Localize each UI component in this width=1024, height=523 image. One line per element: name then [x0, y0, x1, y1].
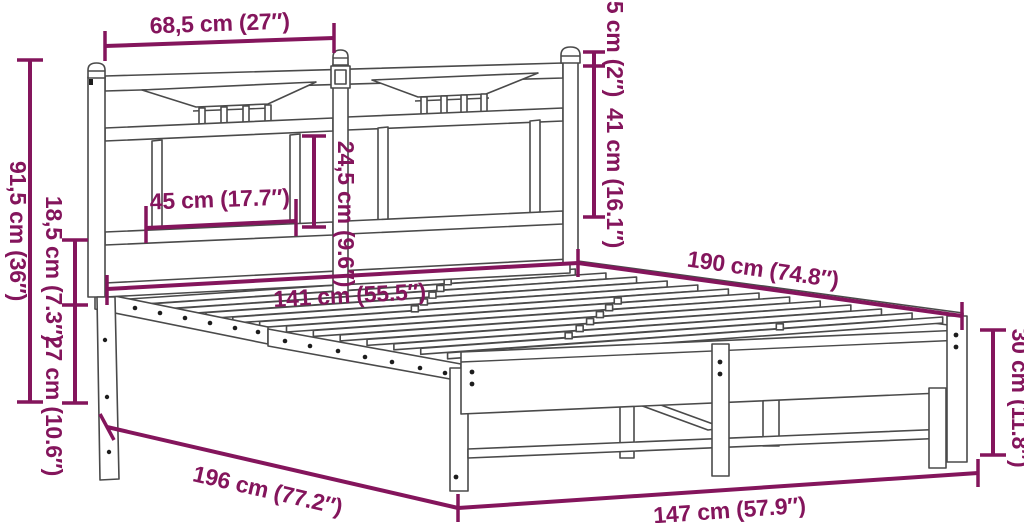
slat-clip	[429, 292, 436, 298]
screw-dot	[390, 360, 395, 365]
foot-corner-post	[947, 316, 967, 462]
panel-bar	[530, 120, 540, 213]
slat-clip	[587, 319, 594, 325]
dimension-bed-length-outer: 196 cm (77.2″)	[100, 414, 458, 522]
dimension-headboard-mid-and-frame-height: 18,5 cm (7.3″) 27 cm (10.6″)	[41, 196, 88, 476]
slat-clip	[596, 312, 603, 318]
front-right-leg	[929, 388, 946, 468]
slat-clip	[614, 298, 621, 304]
slat-clip	[606, 305, 613, 311]
screw-dot	[308, 344, 313, 349]
dimension-label-bed-length-outer: 196 cm (77.2″)	[190, 460, 345, 520]
dimension-label-headboard-upper-height: 41 cm (16.1″)	[602, 108, 628, 248]
post-cap	[561, 47, 580, 63]
screw-dot	[158, 311, 163, 316]
dimension-label-post-cap-height: 5 cm (2″)	[602, 1, 628, 97]
screw-dot	[233, 326, 238, 331]
slat-clip	[437, 285, 444, 291]
screw-dot	[133, 306, 138, 311]
slat-clip	[411, 306, 418, 312]
slat-clip	[776, 324, 783, 330]
bed-frame-diagram: 68,5 cm (27″) 5 cm (2″) 41 cm (16.1″) 91…	[0, 0, 1024, 523]
panel-bar	[378, 127, 388, 221]
dimension-label-headboard-total-height: 91,5 cm (36″)	[5, 161, 31, 301]
diagram-canvas: 68,5 cm (27″) 5 cm (2″) 41 cm (16.1″) 91…	[0, 0, 1024, 523]
screw-dot	[208, 321, 213, 326]
headboard-left-post	[88, 77, 105, 297]
dimension-headboard-total-height: 91,5 cm (36″)	[5, 60, 43, 402]
screw-dot	[256, 330, 261, 335]
screw-dot	[183, 316, 188, 321]
bottom-stretcher	[468, 429, 948, 458]
slat-clip	[576, 326, 583, 332]
screw-dot	[443, 371, 448, 376]
panel-bar	[152, 140, 162, 233]
dimension-label-frame-height: 27 cm (10.6″)	[41, 336, 67, 476]
dimension-label-side-rail-height: 30 cm (11.8″)	[1007, 329, 1024, 468]
screw-dot	[336, 349, 341, 354]
dimension-panel-opening-height: 24,5 cm (9.6″)	[302, 136, 359, 287]
slat-clip	[565, 333, 572, 339]
dimension-label-headboard-mid-height: 18,5 cm (7.3″)	[41, 196, 67, 342]
dimension-label-headboard-inner-width: 68,5 cm (27″)	[149, 8, 290, 39]
dimension-headboard-inner-width: 68,5 cm (27″)	[105, 8, 334, 61]
screw-dot	[363, 355, 368, 360]
dimension-label-bed-width-outer: 147 cm (57.9″)	[652, 492, 806, 523]
dimension-side-rail-height: 30 cm (11.8″)	[980, 329, 1024, 468]
headboard-right-post	[563, 62, 578, 263]
dimension-label-panel-opening-height: 24,5 cm (9.6″)	[333, 141, 359, 287]
dimension-label-panel-opening-width: 45 cm (17.7″)	[149, 184, 290, 215]
screw-dot	[283, 339, 288, 344]
dimension-post-cap-and-upper: 5 cm (2″) 41 cm (16.1″)	[583, 1, 628, 248]
screw-dot	[418, 366, 423, 371]
